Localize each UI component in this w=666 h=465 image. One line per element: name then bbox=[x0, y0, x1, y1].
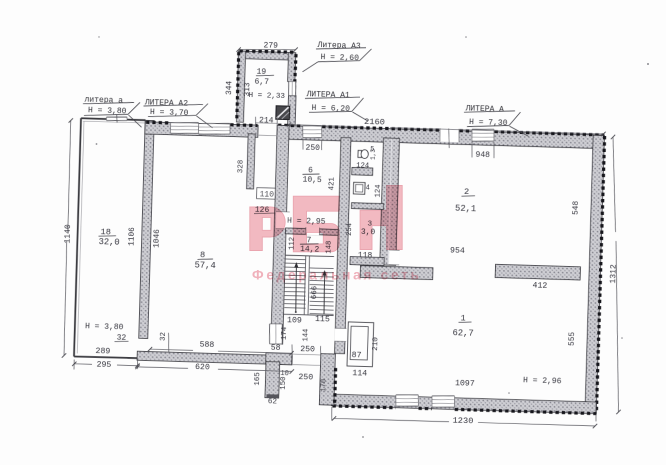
svg-text:170: 170 bbox=[320, 379, 328, 393]
svg-text:555: 555 bbox=[569, 332, 577, 347]
svg-text:295: 295 bbox=[96, 360, 111, 369]
svg-text:литера а: литера а bbox=[84, 96, 123, 106]
svg-text:110: 110 bbox=[259, 190, 274, 199]
svg-text:328: 328 bbox=[237, 160, 245, 174]
svg-text:ЛИТЕРА А: ЛИТЕРА А bbox=[464, 104, 504, 114]
svg-text:250: 250 bbox=[300, 345, 315, 354]
svg-text:165: 165 bbox=[254, 372, 262, 386]
svg-text:174: 174 bbox=[281, 326, 289, 340]
svg-text:948: 948 bbox=[475, 151, 490, 160]
svg-text:124: 124 bbox=[375, 184, 383, 197]
svg-text:412: 412 bbox=[532, 281, 547, 290]
svg-text:6,7: 6,7 bbox=[254, 77, 269, 86]
svg-text:62,7: 62,7 bbox=[452, 328, 473, 339]
svg-text:87: 87 bbox=[352, 351, 362, 360]
svg-text:344: 344 bbox=[226, 81, 234, 96]
svg-text:Федеральная сеть: Федеральная сеть bbox=[252, 268, 422, 283]
svg-text:144: 144 bbox=[302, 329, 310, 342]
svg-text:214: 214 bbox=[259, 116, 274, 125]
svg-text:1106: 1106 bbox=[128, 227, 137, 246]
svg-text:2: 2 bbox=[464, 187, 469, 197]
svg-text:1097: 1097 bbox=[455, 379, 475, 389]
svg-text:Н = 2,33: Н = 2,33 bbox=[248, 92, 285, 101]
svg-text:254: 254 bbox=[346, 223, 354, 236]
svg-text:109: 109 bbox=[287, 316, 302, 325]
svg-text:52,1: 52,1 bbox=[455, 204, 476, 215]
svg-text:620: 620 bbox=[195, 363, 210, 372]
svg-text:289: 289 bbox=[95, 347, 110, 356]
svg-text:150: 150 bbox=[280, 376, 288, 390]
svg-text:124: 124 bbox=[356, 162, 369, 170]
svg-text:1140: 1140 bbox=[64, 224, 74, 244]
svg-text:954: 954 bbox=[450, 246, 465, 255]
svg-text:666: 666 bbox=[311, 286, 319, 300]
svg-text:10,5: 10,5 bbox=[302, 176, 322, 186]
svg-text:1,3: 1,3 bbox=[370, 149, 377, 160]
svg-text:62: 62 bbox=[268, 398, 278, 406]
svg-text:Н = 3,80: Н = 3,80 bbox=[85, 322, 124, 332]
svg-text:250: 250 bbox=[305, 144, 320, 153]
svg-text:279: 279 bbox=[263, 41, 278, 50]
svg-text:ЛИТЕРА А1: ЛИТЕРА А1 bbox=[305, 90, 350, 100]
svg-text:Литера А3: Литера А3 bbox=[316, 41, 361, 51]
svg-text:250: 250 bbox=[298, 373, 313, 382]
svg-text:32,0: 32,0 bbox=[98, 237, 119, 248]
svg-text:1312: 1312 bbox=[609, 264, 619, 284]
svg-text:32: 32 bbox=[160, 332, 168, 341]
svg-text:57,4: 57,4 bbox=[194, 261, 215, 272]
svg-text:421: 421 bbox=[328, 176, 336, 190]
svg-text:4: 4 bbox=[366, 184, 370, 192]
svg-text:588: 588 bbox=[199, 341, 214, 350]
svg-text:58: 58 bbox=[271, 344, 281, 353]
svg-text:210: 210 bbox=[372, 337, 380, 351]
svg-text:118: 118 bbox=[358, 251, 373, 260]
svg-text:Н = 2,96: Н = 2,96 bbox=[523, 376, 562, 386]
svg-text:1230: 1230 bbox=[452, 416, 473, 427]
svg-text:115: 115 bbox=[315, 315, 330, 324]
svg-text:548: 548 bbox=[573, 201, 581, 216]
svg-text:1046: 1046 bbox=[153, 229, 162, 248]
svg-text:114: 114 bbox=[352, 369, 367, 378]
svg-text:2160: 2160 bbox=[364, 117, 385, 128]
svg-text:313: 313 bbox=[244, 82, 252, 97]
